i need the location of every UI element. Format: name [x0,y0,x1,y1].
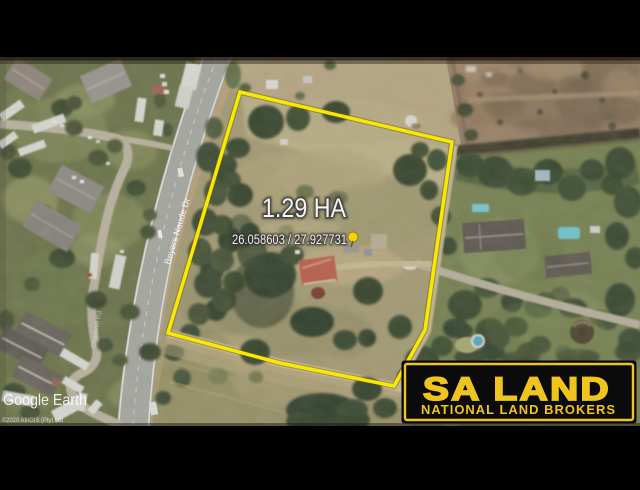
svg-text:1.29 HA: 1.29 HA [262,193,346,223]
svg-text:©2020 AfriGIS (Pty) Ltd: ©2020 AfriGIS (Pty) Ltd [2,416,63,424]
svg-text:SA LAND: SA LAND [423,371,611,407]
svg-text:NATIONAL LAND BROKERS: NATIONAL LAND BROKERS [421,403,616,417]
svg-text:Google Earth: Google Earth [3,392,87,409]
svg-text:26.058603 / 27.927731: 26.058603 / 27.927731 [232,231,347,247]
